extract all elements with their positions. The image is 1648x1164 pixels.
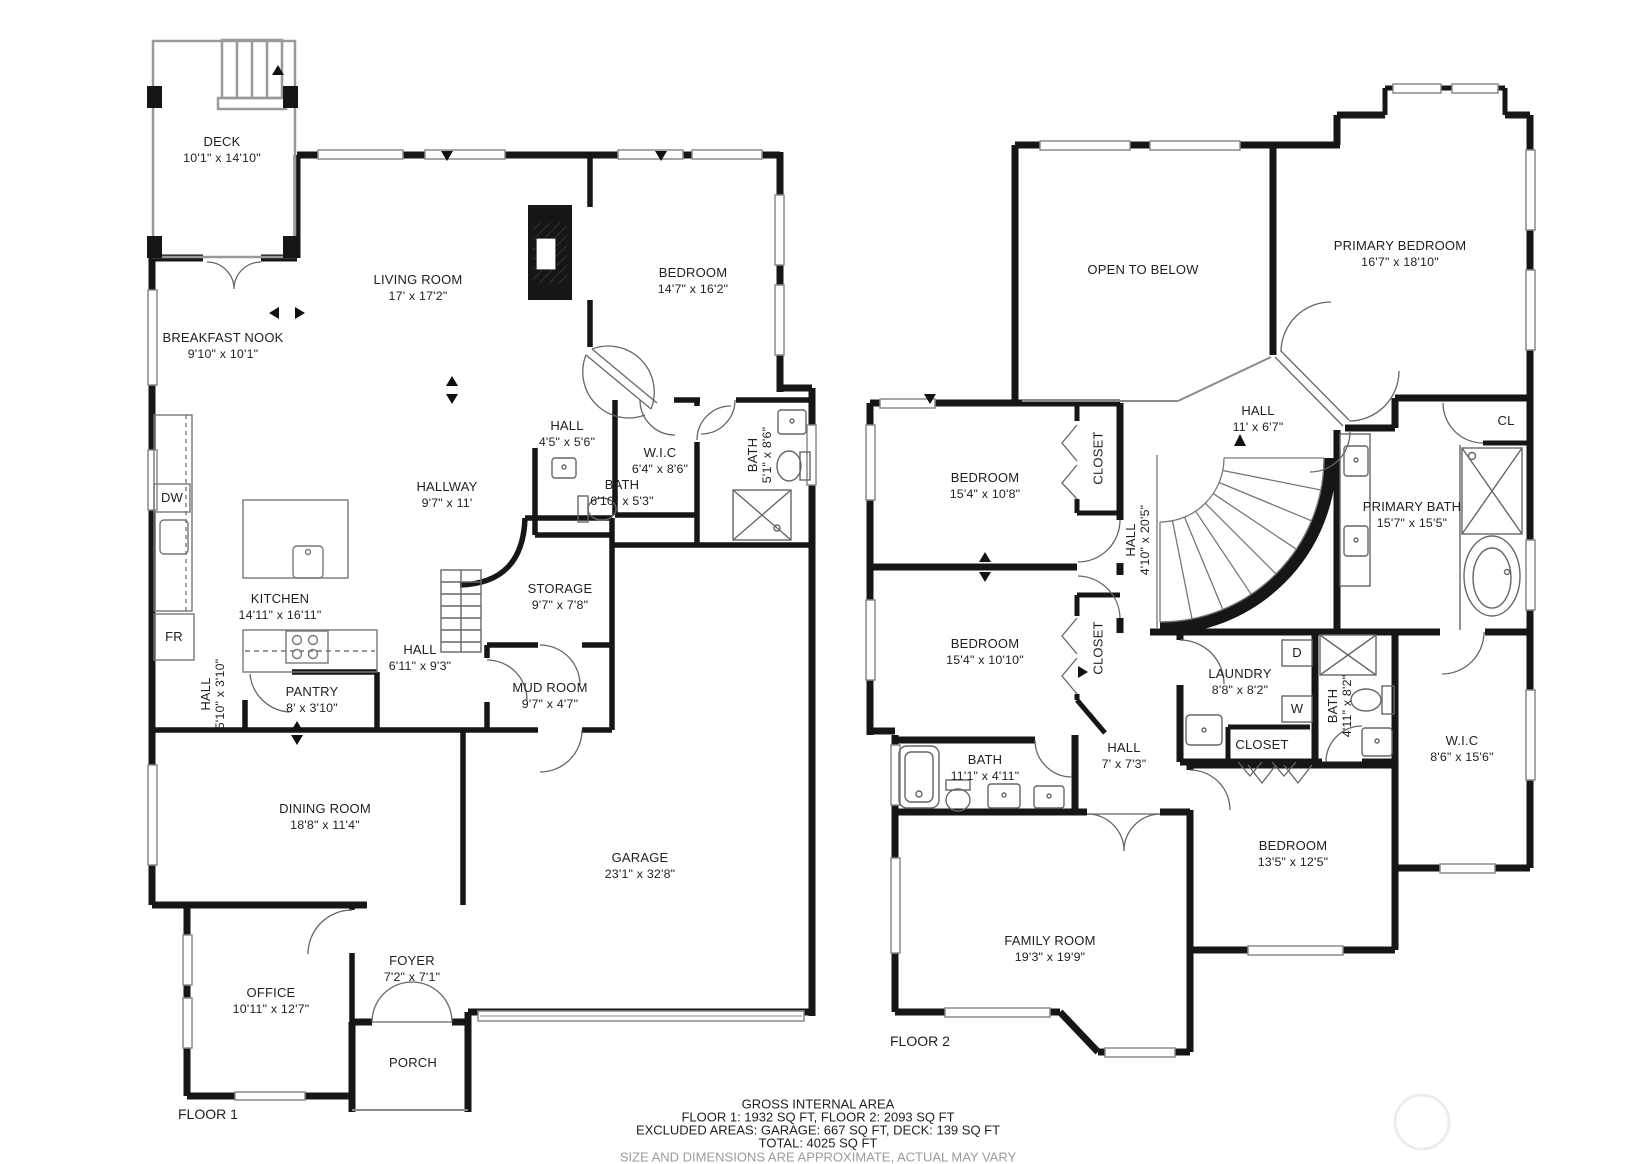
room-label-hall-c-f2: HALL 7' x 7'3" bbox=[1102, 740, 1147, 772]
room-label-bedroom-f1: BEDROOM 14'7" x 16'2" bbox=[658, 265, 729, 297]
room-label-hall-a-f1: HALL 4'5" x 5'6" bbox=[539, 418, 595, 450]
room-label-bath-a-f2: BATH 4'11" x 8'2" bbox=[1325, 675, 1355, 738]
room-label-pantry: PANTRY 8' x 3'10" bbox=[286, 684, 339, 716]
floor1-label: FLOOR 1 bbox=[178, 1106, 238, 1122]
room-label-storage: STORAGE 9'7" x 7'8" bbox=[528, 581, 593, 613]
room-label-open-to-below: OPEN TO BELOW bbox=[1087, 262, 1198, 278]
room-label-wic-f1: W.I.C 6'4" x 8'6" bbox=[632, 445, 688, 477]
room-label-closet-b-f2: CLOSET bbox=[1091, 621, 1106, 674]
appliance-label-washer: W bbox=[1291, 701, 1303, 717]
room-label-bedroom-a-f2: BEDROOM 15'4" x 10'8" bbox=[950, 470, 1021, 502]
room-label-family-room: FAMILY ROOM 19'3" x 19'9" bbox=[1004, 933, 1095, 965]
room-label-hall-a-f2: HALL 11' x 6'7" bbox=[1233, 403, 1284, 435]
room-label-garage: GARAGE 23'1" x 32'8" bbox=[605, 850, 676, 882]
room-label-hall-b-f1: HALL 6'11" x 9'3" bbox=[389, 642, 452, 674]
room-label-closet-a-f2: CLOSET bbox=[1091, 431, 1106, 484]
room-label-living-room: LIVING ROOM 17' x 17'2" bbox=[374, 272, 463, 304]
room-label-bath-b-f1: BATH 6'10" x 5'3" bbox=[590, 477, 653, 509]
watermark-logo bbox=[1395, 1095, 1449, 1149]
room-label-dining-room: DINING ROOM 18'8" x 11'4" bbox=[279, 801, 371, 833]
room-label-cl-closet: CL bbox=[1497, 413, 1514, 429]
room-label-bath-a-f1: BATH 5'1" x 8'6" bbox=[745, 427, 775, 483]
footer-total-area: TOTAL: 4025 SQ FT bbox=[759, 1136, 878, 1151]
appliance-label-fridge: FR bbox=[165, 629, 183, 645]
room-label-office: OFFICE 10'11" x 12'7" bbox=[233, 985, 310, 1017]
room-label-bedroom-b-f2: BEDROOM 15'4" x 10'10" bbox=[946, 636, 1024, 668]
room-label-wic-f2: W.I.C 8'6" x 15'6" bbox=[1430, 733, 1493, 765]
footer-disclaimer: SIZE AND DIMENSIONS ARE APPROXIMATE, ACT… bbox=[620, 1150, 1016, 1164]
room-label-primary-bath: PRIMARY BATH 15'7" x 15'5" bbox=[1363, 499, 1461, 531]
room-label-closet-c-f2: CLOSET bbox=[1235, 737, 1288, 753]
room-label-porch: PORCH bbox=[389, 1055, 437, 1071]
room-label-mud-room: MUD ROOM 9'7" x 4'7" bbox=[512, 680, 587, 712]
floorplan: DECK 10'1" x 14'10" BREAKFAST NOOK 9'10"… bbox=[0, 0, 1648, 1164]
room-label-laundry: LAUNDRY 8'8" x 8'2" bbox=[1208, 666, 1271, 698]
room-label-bath-b-f2: BATH 11'1" x 4'11" bbox=[951, 752, 1020, 784]
room-label-bedroom-c-f2: BEDROOM 13'5" x 12'5" bbox=[1258, 838, 1329, 870]
room-label-hall-c-f1: HALL 5'10" x 3'10" bbox=[198, 659, 228, 730]
room-label-kitchen: KITCHEN 14'11" x 16'11" bbox=[239, 591, 322, 623]
appliance-label-dishwasher: DW bbox=[161, 490, 183, 506]
room-label-hallway: HALLWAY 9'7" x 11' bbox=[416, 479, 477, 511]
room-label-foyer: FOYER 7'2" x 7'1" bbox=[384, 953, 440, 985]
room-label-primary-bedroom: PRIMARY BEDROOM 16'7" x 18'10" bbox=[1334, 238, 1467, 270]
room-label-breakfast-nook: BREAKFAST NOOK 9'10" x 10'1" bbox=[162, 330, 283, 362]
floor2-label: FLOOR 2 bbox=[890, 1033, 950, 1049]
room-label-deck: DECK 10'1" x 14'10" bbox=[183, 134, 261, 166]
appliance-label-dryer: D bbox=[1292, 645, 1302, 661]
room-label-hall-b-f2: HALL 4'10" x 20'5" bbox=[1123, 505, 1153, 576]
